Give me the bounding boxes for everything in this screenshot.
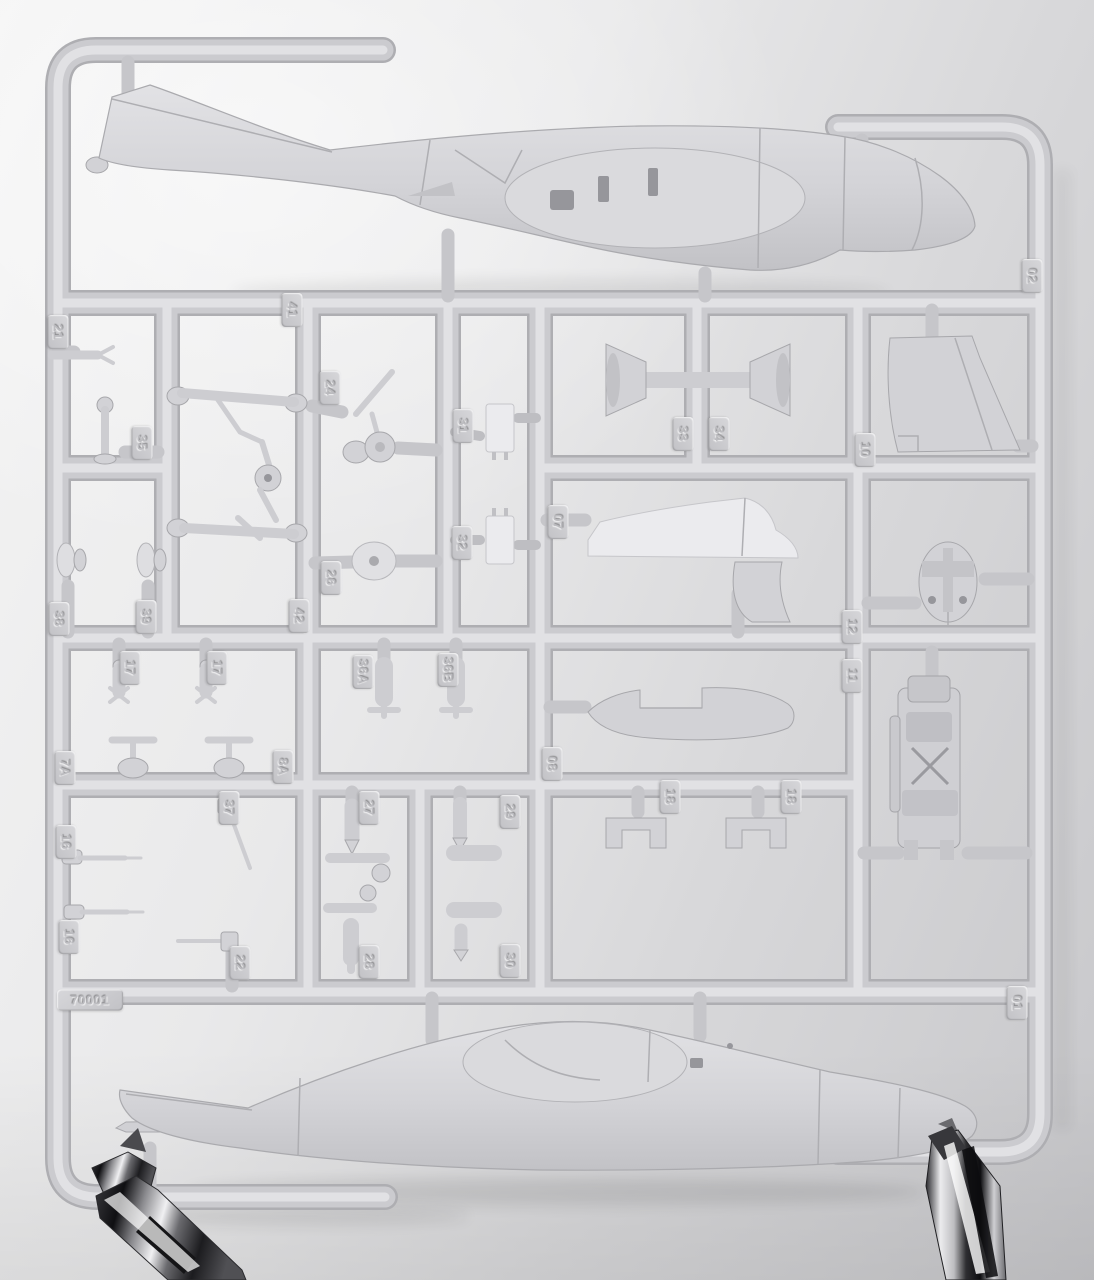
part-number-tag: 41 bbox=[282, 293, 303, 327]
part-number-tag: 16 bbox=[56, 825, 77, 859]
part-number-tag: 11 bbox=[842, 659, 863, 693]
part-wheel-26 bbox=[352, 542, 396, 580]
part-ejection-seat-11 bbox=[890, 676, 960, 860]
part-number-tag: 39 bbox=[136, 600, 157, 634]
part-landing-gear-legs bbox=[182, 393, 294, 538]
part-number-tag: 24 bbox=[320, 371, 341, 405]
part-number-tag: 35 bbox=[132, 426, 153, 460]
part-canopy-07 bbox=[588, 498, 798, 622]
part-tailwheel-24 bbox=[343, 372, 395, 463]
part-number-tag: 28 bbox=[359, 945, 380, 979]
part-number-tag: 12 bbox=[842, 610, 863, 644]
part-number-tag: 17 bbox=[207, 651, 228, 685]
part-number-tag: 7A bbox=[55, 751, 76, 785]
part-wheels-38-39 bbox=[57, 543, 166, 577]
part-number-tag: 07 bbox=[548, 505, 569, 539]
part-strut-35 bbox=[94, 397, 116, 464]
part-number-tag: 10 bbox=[855, 433, 876, 467]
part-number-tag: 22 bbox=[230, 946, 251, 980]
part-number-tag: 18 bbox=[660, 780, 681, 814]
part-tank-30 bbox=[454, 910, 494, 961]
part-number-tag: 33 bbox=[673, 417, 694, 451]
part-number-tag: 26 bbox=[321, 561, 342, 595]
part-number-tag: 32 bbox=[452, 526, 473, 560]
part-number-tag: 02 bbox=[1022, 259, 1043, 293]
part-tailfin-10 bbox=[888, 336, 1020, 452]
part-number-tag: 31 bbox=[453, 409, 474, 443]
part-number-tag: 8A bbox=[273, 750, 294, 784]
part-window-31 bbox=[486, 404, 514, 460]
fuselage-half-upper bbox=[86, 85, 975, 270]
part-number-tag: 38 bbox=[49, 602, 70, 636]
part-number-tag: 21 bbox=[48, 315, 69, 349]
part-number-tag: 17 bbox=[120, 651, 141, 685]
part-channels-18 bbox=[606, 818, 786, 848]
fuselage-half-lower bbox=[116, 1021, 977, 1170]
part-number-tag: 18 bbox=[781, 780, 802, 814]
part-bulkhead-12 bbox=[919, 542, 977, 626]
part-guns-16 bbox=[62, 850, 143, 919]
part-number-tag: 08 bbox=[542, 747, 563, 781]
part-decking-08 bbox=[588, 688, 794, 740]
part-number-tag: 34 bbox=[709, 417, 730, 451]
part-number-tag: 42 bbox=[289, 599, 310, 633]
kit-number-tag: 70001 bbox=[57, 990, 123, 1011]
part-number-tag: 36A bbox=[353, 655, 374, 689]
part-number-tag: 37 bbox=[219, 791, 240, 825]
part-number-tag: 16 bbox=[59, 920, 80, 954]
part-number-tag: 36B bbox=[438, 653, 459, 687]
sprue-graphic bbox=[0, 0, 1094, 1280]
part-window-32 bbox=[486, 508, 514, 564]
part-number-tag: 27 bbox=[359, 791, 380, 825]
part-number-tag: 29 bbox=[500, 795, 521, 829]
sprue-photo: 02 21 41 24 31 33 34 10 35 07 32 26 38 3… bbox=[0, 0, 1094, 1280]
part-number-tag: 01 bbox=[1007, 986, 1028, 1020]
part-number-tag: 30 bbox=[500, 944, 521, 978]
part-rocket-29 bbox=[453, 804, 494, 853]
